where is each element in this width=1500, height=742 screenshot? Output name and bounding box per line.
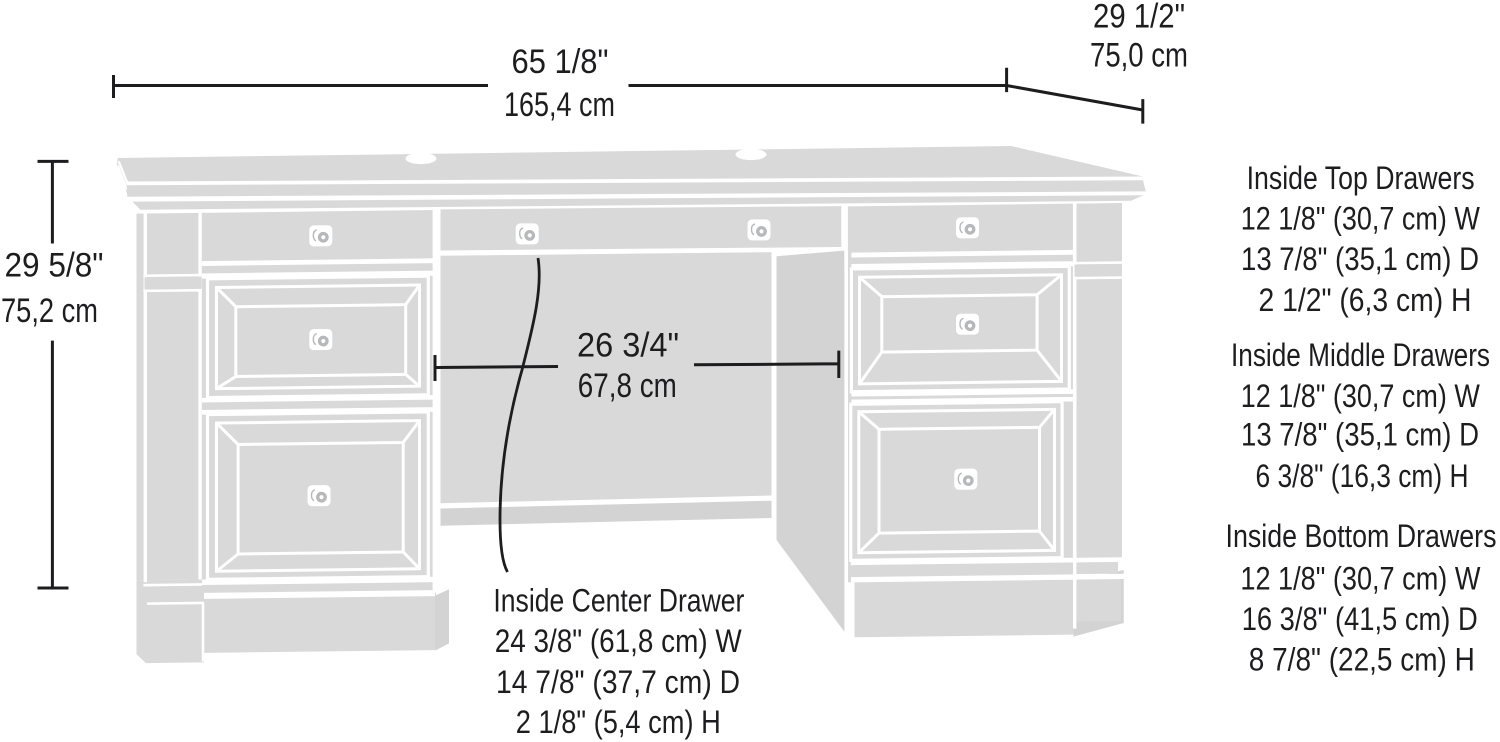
svg-text:24 3/8" (61,8 cm) W: 24 3/8" (61,8 cm) W	[495, 623, 743, 659]
svg-text:75,2 cm: 75,2 cm	[1, 292, 98, 330]
svg-text:16 3/8" (41,5 cm) D: 16 3/8" (41,5 cm) D	[1242, 601, 1478, 637]
svg-text:75,0 cm: 75,0 cm	[1090, 37, 1188, 75]
svg-text:2 1/8" (5,4 cm) H: 2 1/8" (5,4 cm) H	[516, 704, 721, 740]
svg-text:65 1/8": 65 1/8"	[512, 43, 609, 81]
svg-text:67,8 cm: 67,8 cm	[578, 367, 677, 405]
svg-text:29 1/2": 29 1/2"	[1093, 0, 1185, 36]
svg-text:13 7/8" (35,1 cm) D: 13 7/8" (35,1 cm) D	[1241, 417, 1479, 453]
svg-text:29 5/8": 29 5/8"	[5, 247, 104, 285]
svg-text:14 7/8" (37,7 cm) D: 14 7/8" (37,7 cm) D	[496, 664, 740, 700]
svg-text:2 1/2" (6,3 cm) H: 2 1/2" (6,3 cm) H	[1259, 282, 1472, 318]
svg-text:Inside Middle Drawers: Inside Middle Drawers	[1231, 337, 1490, 373]
svg-text:Inside Bottom Drawers: Inside Bottom Drawers	[1226, 518, 1497, 554]
svg-text:8 7/8" (22,5 cm) H: 8 7/8" (22,5 cm) H	[1249, 642, 1475, 678]
svg-text:165,4 cm: 165,4 cm	[504, 86, 615, 124]
svg-text:12 1/8" (30,7 cm) W: 12 1/8" (30,7 cm) W	[1241, 200, 1481, 236]
svg-text:Inside Center Drawer: Inside Center Drawer	[493, 582, 744, 618]
svg-text:13 7/8" (35,1 cm) D: 13 7/8" (35,1 cm) D	[1241, 241, 1479, 277]
svg-text:6 3/8" (16,3 cm) H: 6 3/8" (16,3 cm) H	[1256, 458, 1469, 494]
svg-text:12 1/8" (30,7 cm) W: 12 1/8" (30,7 cm) W	[1241, 378, 1481, 414]
svg-text:Inside Top Drawers: Inside Top Drawers	[1247, 160, 1475, 196]
svg-text:26 3/4": 26 3/4"	[577, 327, 679, 365]
svg-text:12 1/8" (30,7 cm) W: 12 1/8" (30,7 cm) W	[1240, 561, 1481, 597]
